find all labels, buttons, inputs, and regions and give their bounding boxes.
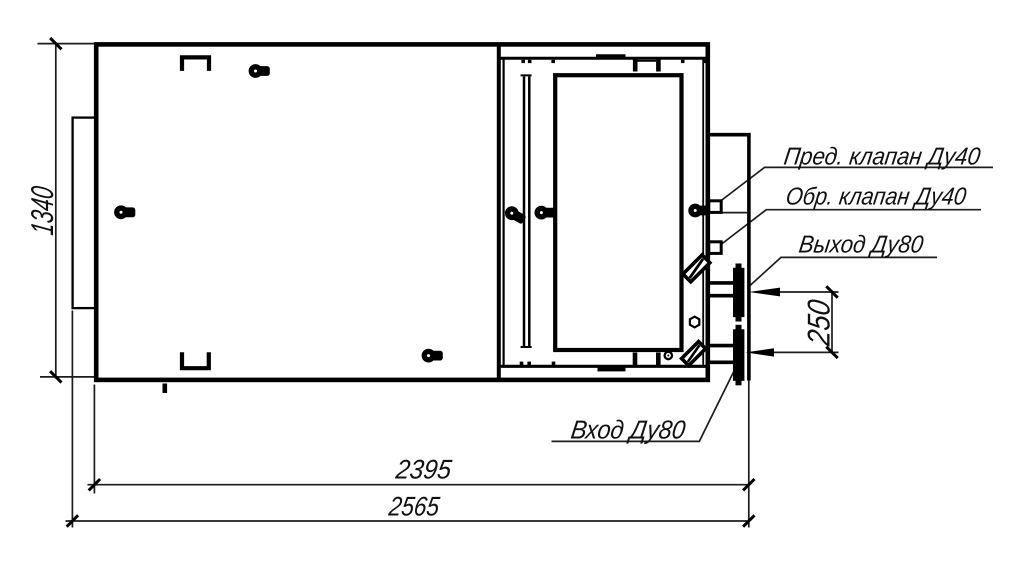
svg-text:Выход Ду80: Выход Ду80 [797,231,925,258]
svg-text:1340: 1340 [24,184,60,237]
svg-text:250: 250 [801,297,837,348]
svg-text:Вход Ду80: Вход Ду80 [569,414,688,444]
svg-text:2395: 2395 [393,454,454,485]
svg-text:Пред. клапан Ду40: Пред. клапан Ду40 [782,144,982,171]
svg-text:Обр. клапан Ду40: Обр. клапан Ду40 [784,184,968,211]
svg-text:2565: 2565 [386,491,442,522]
